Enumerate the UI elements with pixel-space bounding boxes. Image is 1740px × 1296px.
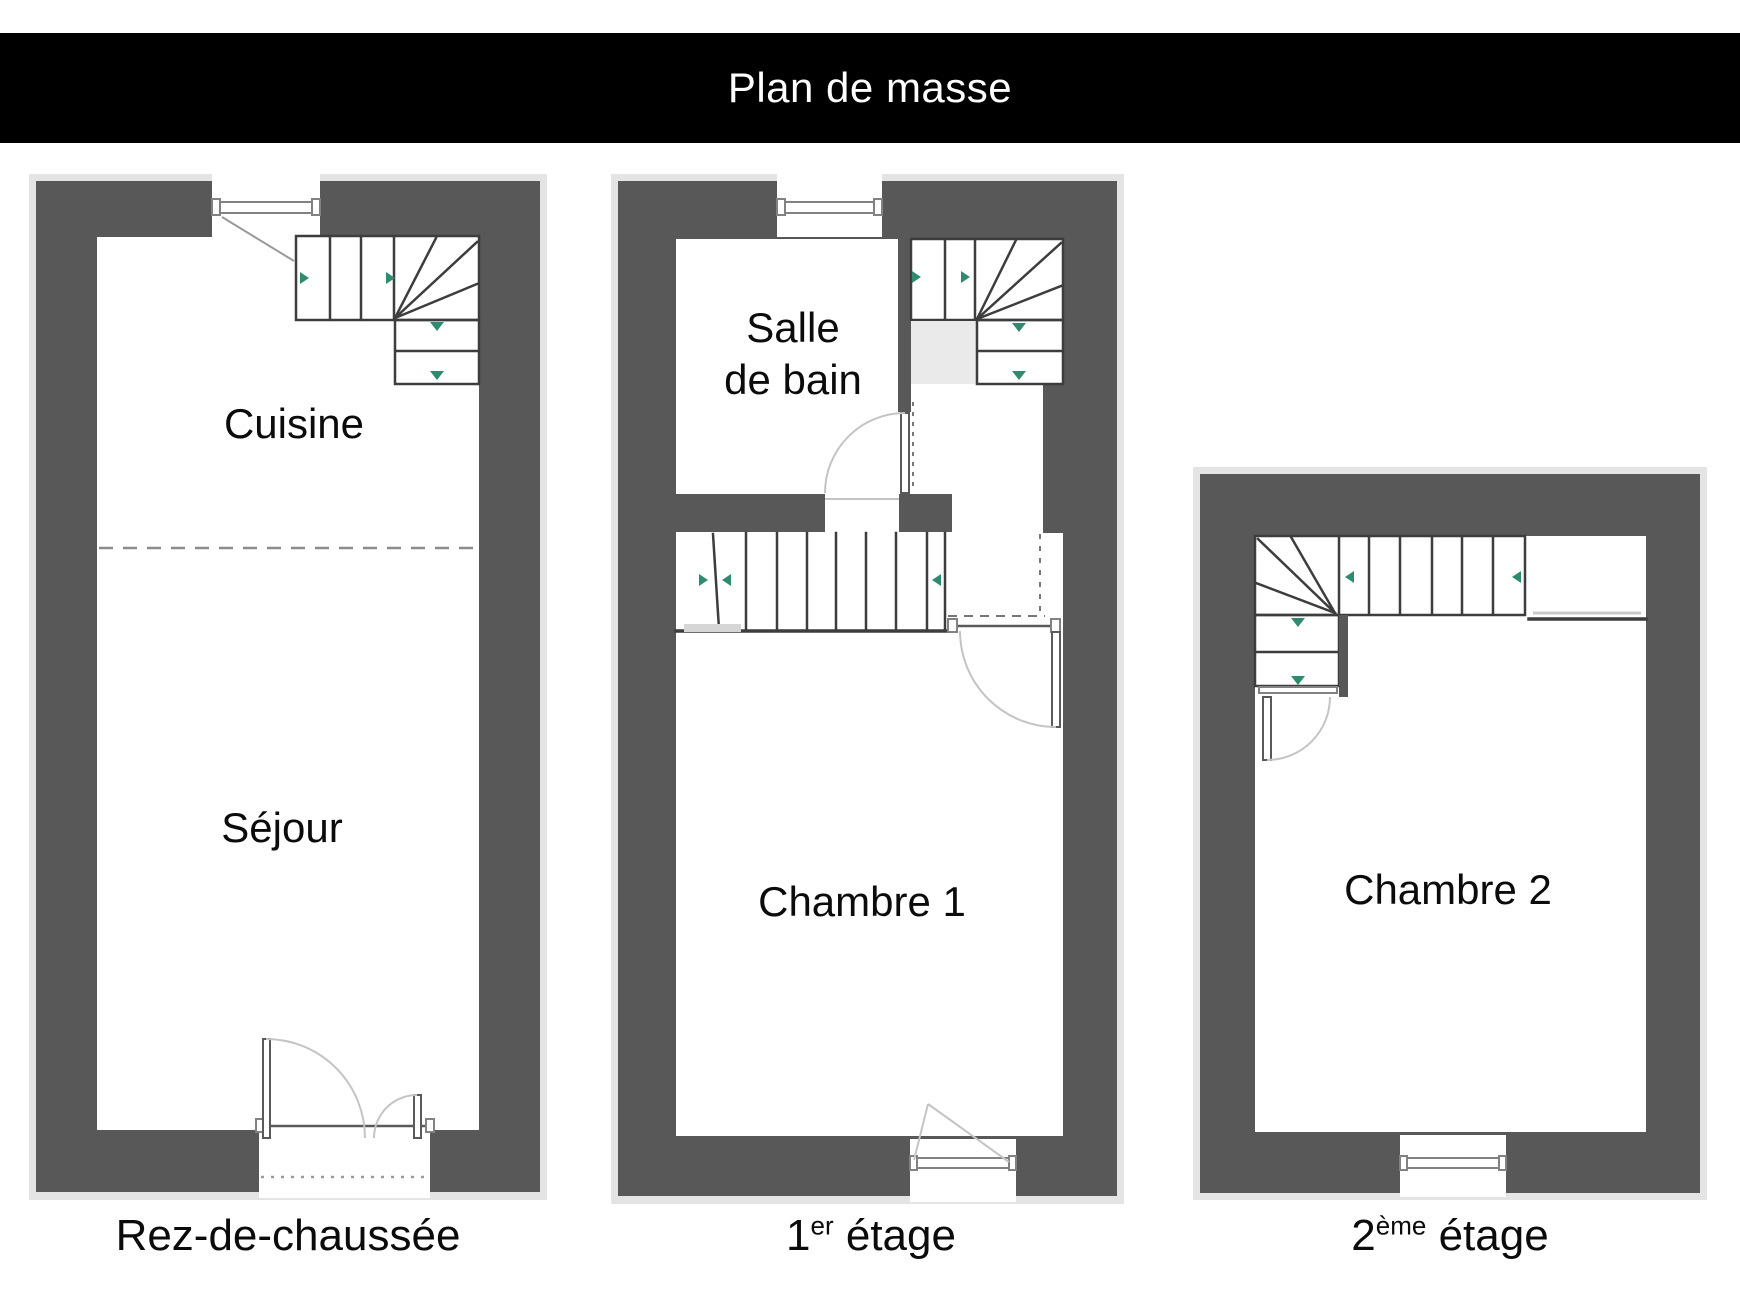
plan-de-masse-page: Plan de masse [0,0,1740,1296]
floor-caption-rez-de-chaussee: Rez-de-chaussée [88,1208,488,1264]
room-label-cuisine: Cuisine [144,398,444,450]
window-top [777,172,882,237]
floor-caption-deuxieme-etage: 2ème étage [1250,1208,1650,1264]
window-bottom [1400,1135,1506,1197]
title-bar: Plan de masse [0,33,1740,143]
interior-space [1255,536,1646,1132]
floor-plan-rez-de-chaussee [24,162,552,1206]
room-label-salle-de-bain: Salle de bain [643,302,943,406]
floor-caption-premier-etage: 1er étage [671,1208,1071,1264]
page-title: Plan de masse [728,64,1012,112]
room-label-sejour: Séjour [132,802,432,854]
room-label-chambre-1: Chambre 1 [712,876,1012,928]
floor-plan-deuxieme-etage [1186,458,1710,1206]
room-label-chambre-2: Chambre 2 [1298,864,1598,916]
interior-space [97,237,479,1130]
